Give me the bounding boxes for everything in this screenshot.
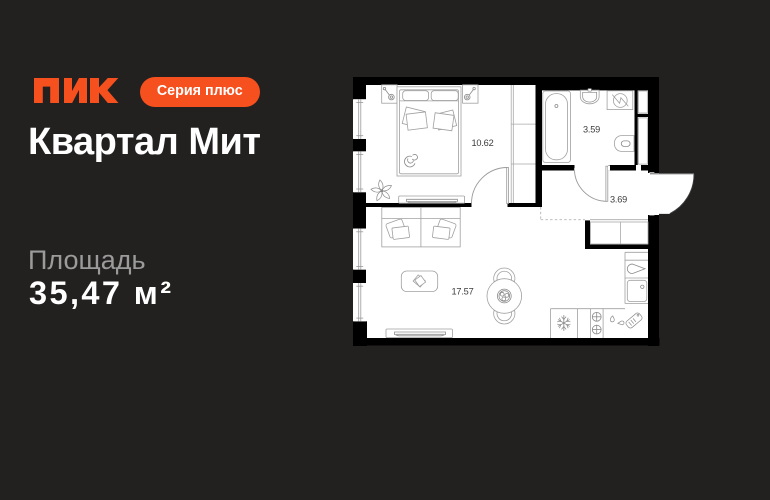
svg-text:17.57: 17.57 [452,287,474,297]
svg-text:3.69: 3.69 [610,195,627,205]
svg-text:3.59: 3.59 [583,125,600,135]
svg-text:10.62: 10.62 [472,138,494,148]
